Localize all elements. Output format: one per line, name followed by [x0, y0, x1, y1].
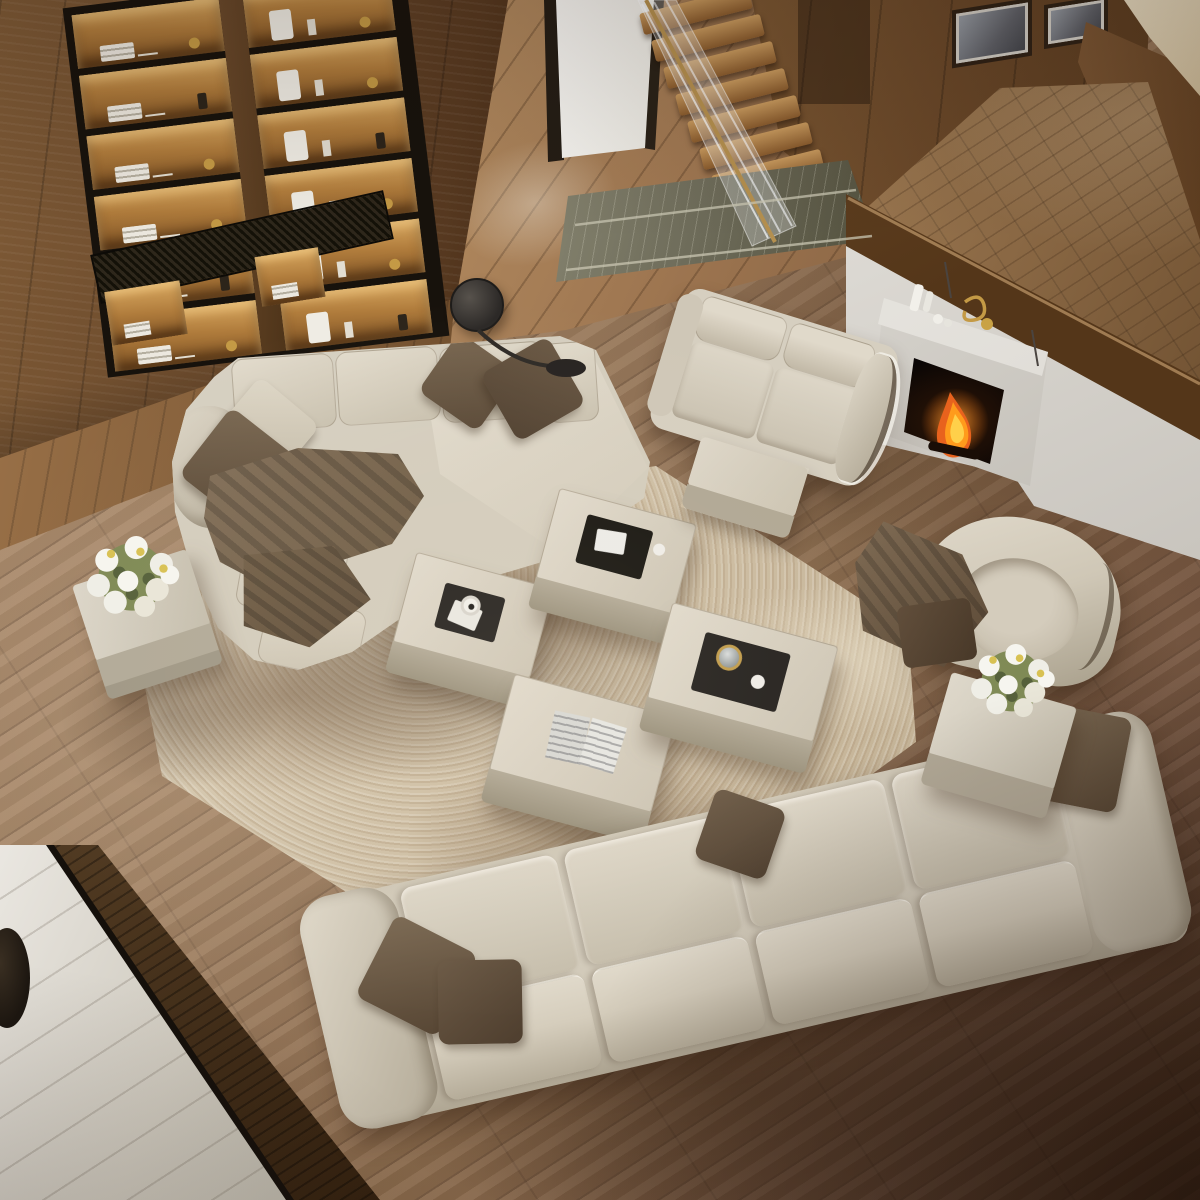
floor-lamp-shade	[450, 278, 504, 332]
living-room-scene	[0, 0, 1200, 1200]
book-page	[594, 529, 627, 555]
brown-pillow	[437, 959, 522, 1044]
armchair-throw-fold	[896, 597, 978, 669]
